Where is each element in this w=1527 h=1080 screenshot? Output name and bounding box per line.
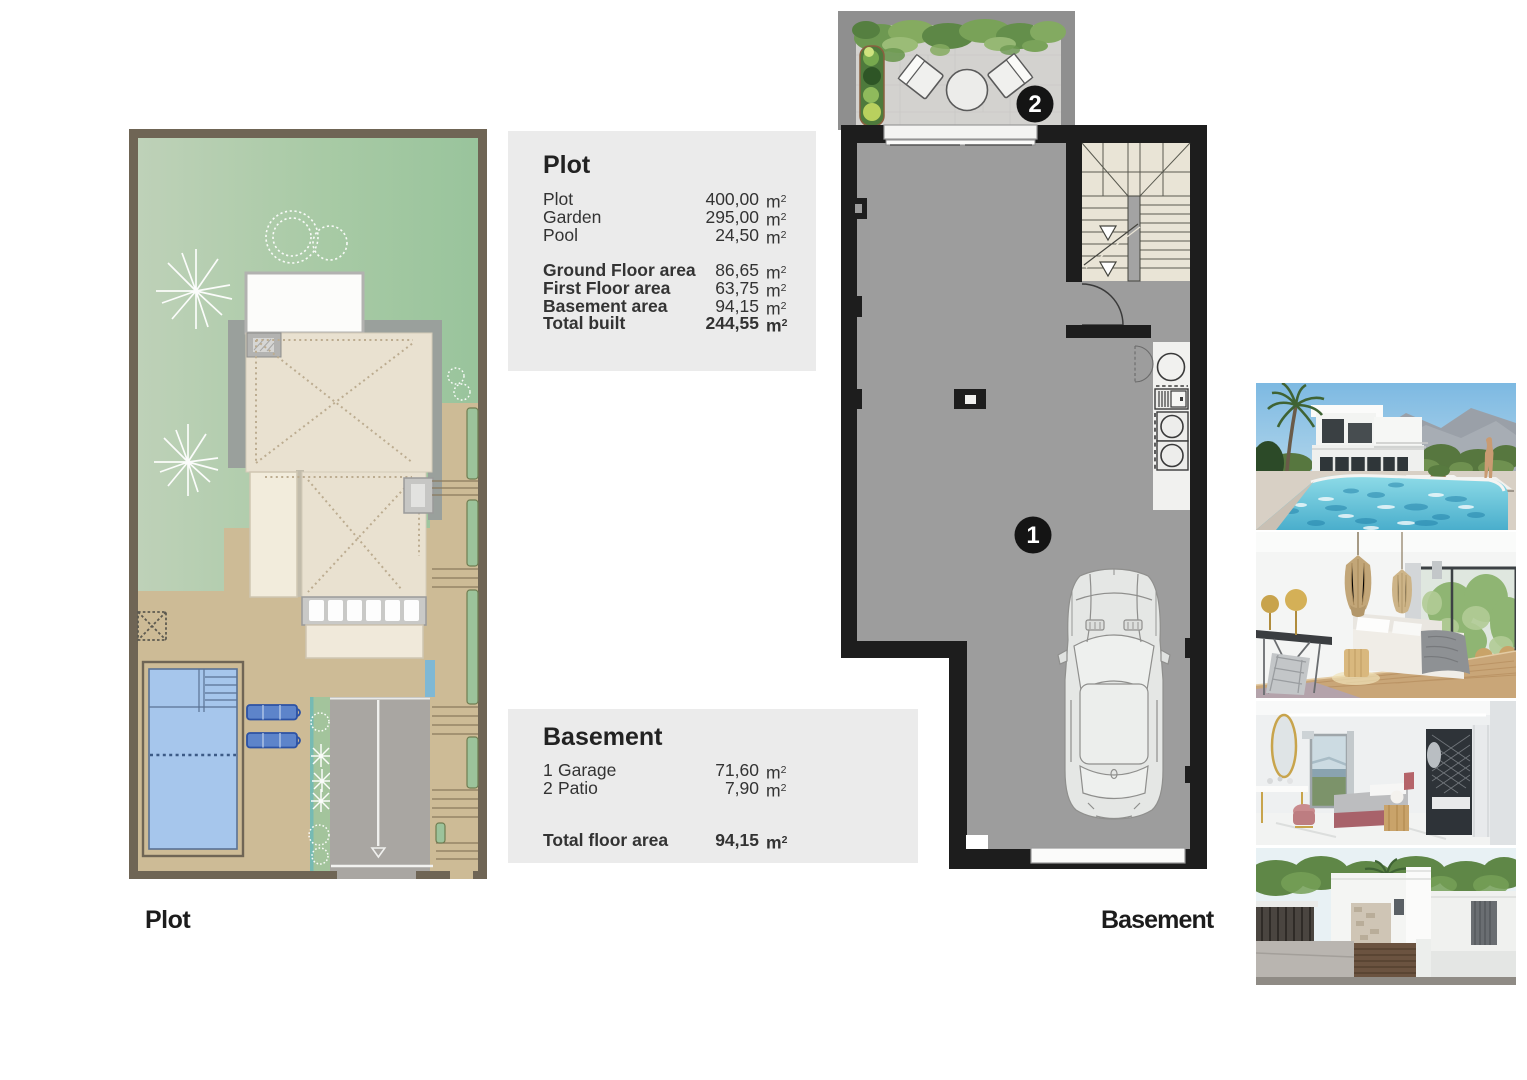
- svg-text:1: 1: [1026, 522, 1039, 549]
- svg-text:2: 2: [1028, 91, 1041, 118]
